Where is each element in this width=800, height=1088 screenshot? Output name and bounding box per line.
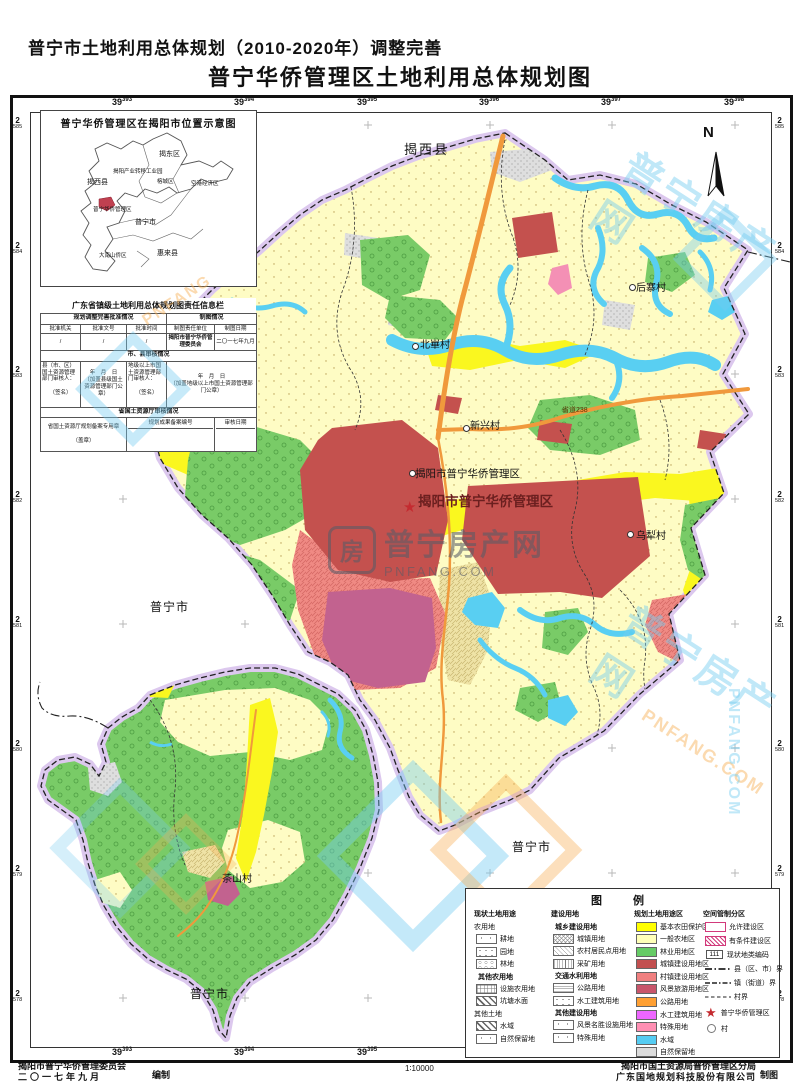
district-star-symbol: ★ xyxy=(705,1009,717,1017)
map-label-provincial-road: 省道238 xyxy=(562,405,588,415)
grid-label-right: 2582 xyxy=(775,492,784,504)
table-col-date: 制图日期 xyxy=(215,324,257,334)
grid-label-left: 2580 xyxy=(13,741,22,753)
grid-label-top: 39394 xyxy=(234,97,254,107)
location-inset-map: 普宁华侨管理区在揭阳市位置示意图 揭东区 揭阳产业转移工业园 揭西县 榕城区 空… xyxy=(40,110,257,287)
legend-group-other-land: 其他土地 xyxy=(474,1009,535,1019)
garden-symbol xyxy=(476,947,497,957)
map-label-puning-city-southwest: 普宁市 xyxy=(190,985,229,1002)
grid-label-right: 2584 xyxy=(775,243,784,255)
map-label-district-small: 揭阳市普宁华侨管理区 xyxy=(415,466,520,481)
zone-swatch-highway xyxy=(636,997,657,1007)
grid-label-left: 2581 xyxy=(13,617,22,629)
grid-label-top: 39397 xyxy=(601,97,621,107)
inset-outline xyxy=(41,125,254,284)
grid-label-top: 39395 xyxy=(357,97,377,107)
table-col-organ: 批准机关 xyxy=(41,324,81,334)
map-label-chashan-village: 茶山村 xyxy=(222,870,252,885)
map-label-puning-city-south: 普宁市 xyxy=(512,838,551,855)
zone-swatch-basic-farmland xyxy=(636,922,657,932)
legend-group-transport-water: 交通水利用地 xyxy=(555,971,633,981)
landuse-code-symbol: 111 xyxy=(706,950,723,959)
inset-region-label: 普宁市 xyxy=(135,217,156,227)
village-point xyxy=(629,284,636,291)
table-sec-province: 省国土资源厅审核情况 xyxy=(41,407,257,418)
district-star-marker: ★ xyxy=(403,498,416,516)
zone-swatch-natural-reserve xyxy=(636,1047,657,1057)
grid-label-bottom: 39393 xyxy=(112,1047,132,1057)
forest-symbol xyxy=(476,959,497,969)
table-val-time: / xyxy=(127,334,167,351)
map-label-jiexi-county: 揭西县 xyxy=(404,139,449,158)
responsibility-table: 广东省镇级土地利用总体规划图责任信息栏 规划调整完善批准情况 制图情况 批准机关… xyxy=(40,298,256,452)
footer-cartography-block: 揭阳市国土资源局普侨管理区分局 广东国地规划科技股份有限公司 xyxy=(560,1061,756,1083)
grid-label-left: 2583 xyxy=(13,367,22,379)
hydraulic-symbol xyxy=(553,996,574,1006)
village-boundary-symbol xyxy=(705,994,731,1000)
zone-swatch-general-agri xyxy=(636,934,657,944)
table-sec-city: 市、县审核情况 xyxy=(41,351,257,362)
inset-region-label: 榕城区 xyxy=(157,177,174,185)
grid-label-left: 2582 xyxy=(13,492,22,504)
table-col-unit: 制图责任单位 xyxy=(167,324,215,334)
inset-region-label: 惠来县 xyxy=(157,248,178,258)
zone-swatch-forestry xyxy=(636,947,657,957)
table-record-no: 规划成果备案编号 xyxy=(127,418,215,452)
table-col-time: 批准时间 xyxy=(127,324,167,334)
map-scale: 1∶10000 xyxy=(405,1064,434,1073)
responsibility-table-title: 广东省镇级土地利用总体规划图责任信息栏 xyxy=(40,298,256,313)
table-county-reviewer: 县（市、区）国土资源管理部门审核人： （签名） xyxy=(41,361,81,407)
plan-map-sheet: { "title": { "line1": "普宁市土地利用总体规划（2010-… xyxy=(0,0,800,1088)
village-point xyxy=(409,470,416,477)
footer-cartography-role: 制图 xyxy=(760,1068,778,1081)
legend-col1-header: 现状土地用途 xyxy=(474,909,535,919)
table-sec-approve: 规划调整完善批准情况 xyxy=(41,314,167,325)
inset-region-label: 揭东区 xyxy=(159,149,180,159)
table-col-doc: 批准文号 xyxy=(81,324,127,334)
table-review-date: 审核日期 xyxy=(215,418,257,452)
footer-compile-date: 二〇一七年九月 xyxy=(18,1072,126,1083)
table-province-seal: 省国土资源厅规划备案专用章 （盖章） xyxy=(41,418,127,452)
special-land-symbol xyxy=(553,1033,574,1043)
grid-label-bottom: 39394 xyxy=(234,1047,254,1057)
farmland-symbol xyxy=(476,934,497,944)
grid-label-left: 2579 xyxy=(13,866,22,878)
footer-cartography-org2: 广东国地规划科技股份有限公司 xyxy=(560,1072,756,1083)
legend-col4-header: 空间管制分区 xyxy=(703,909,783,919)
conditional-zone-symbol xyxy=(705,936,726,946)
legend-col3-header: 规划土地用途区 xyxy=(634,909,709,919)
legend-panel: 图 例 现状土地用途 农用地 耕地 园地 林地 其他农用地 设施农用地 坑塘水面… xyxy=(465,888,780,1058)
table-county-seal: 年 月 日 （加盖县级国土资源管理部门公章） xyxy=(81,361,127,407)
grid-label-right: 2581 xyxy=(775,617,784,629)
grid-label-top: 39398 xyxy=(724,97,744,107)
zone-swatch-scenic-tourism xyxy=(636,984,657,994)
grid-label-left: 2585 xyxy=(13,118,22,130)
legend-group-other-construction: 其他建设用地 xyxy=(555,1008,633,1018)
legend-col-construction: 建设用地 城乡建设用地 城镇用地 农村居民点用地 采矿用地 交通水利用地 公路用… xyxy=(551,909,633,1046)
grid-label-right: 2585 xyxy=(775,118,784,130)
legend-col-planned: 规划土地用途区 基本农田保护区 一般农地区 林业用地区 城镇建设用地区 村镇建设… xyxy=(634,909,709,1060)
inset-region-label: 普宁华侨管理区 xyxy=(93,205,132,213)
scenic-facility-symbol xyxy=(553,1020,574,1030)
inset-region-label: 揭西县 xyxy=(87,177,108,187)
table-city-reviewer: 地级以上市国土资源管理部门审核人： （签名） xyxy=(127,361,167,407)
table-val-doc: / xyxy=(81,334,127,351)
map-label-district-main: 揭阳市普宁华侨管理区 xyxy=(418,490,553,510)
grid-label-right: 2579 xyxy=(775,866,784,878)
grid-label-left: 2578 xyxy=(13,991,22,1003)
zone-swatch-town-construction xyxy=(636,959,657,969)
map-label-puning-city-west: 普宁市 xyxy=(150,598,189,615)
town-land-symbol xyxy=(553,934,574,944)
footer-compiler-org: 揭阳市普宁华侨管理委员会 xyxy=(18,1061,126,1072)
map-label-wuli-village: 乌犁村 xyxy=(636,527,666,542)
map-label-xinxing-village: 新兴村 xyxy=(470,417,500,432)
grid-label-right: 2583 xyxy=(775,367,784,379)
county-boundary-symbol xyxy=(705,966,731,972)
village-point xyxy=(412,343,419,350)
legend-col-current: 现状土地用途 农用地 耕地 园地 林地 其他农用地 设施农用地 坑塘水面 其他土… xyxy=(474,909,535,1047)
zone-swatch-hydraulic xyxy=(636,1010,657,1020)
inset-region-label: 空港经济区 xyxy=(191,179,219,187)
footer-compiler-block: 揭阳市普宁华侨管理委员会 二〇一七年九月 xyxy=(18,1061,126,1083)
legend-title: 图 例 xyxy=(466,892,779,908)
map-label-houzhai-village: 后寨村 xyxy=(636,279,666,294)
pond-symbol xyxy=(476,996,497,1006)
inset-region-label: 大南山侨区 xyxy=(99,251,127,259)
legend-col-control: 空间管制分区 允许建设区 有条件建设区 111现状地类编码 县（区、市）界 镇（… xyxy=(703,909,783,1036)
legend-group-other-agri: 其他农用地 xyxy=(478,972,535,982)
village-point-symbol xyxy=(707,1024,716,1033)
grid-label-top: 39393 xyxy=(112,97,132,107)
table-val-unit: 揭阳市普宁华侨管理委员会 xyxy=(167,334,215,351)
grid-label-top: 39396 xyxy=(479,97,499,107)
village-point xyxy=(627,531,634,538)
table-sec-mapping: 制图情况 xyxy=(167,314,257,325)
table-val-organ: / xyxy=(41,334,81,351)
water-symbol xyxy=(476,1021,497,1031)
facility-agri-symbol xyxy=(476,984,497,994)
road-land-symbol xyxy=(553,983,574,993)
table-val-date: 二〇一七年九月 xyxy=(215,334,257,351)
mining-symbol xyxy=(553,959,574,969)
legend-group-urban-rural: 城乡建设用地 xyxy=(555,922,633,932)
natural-reserve-symbol xyxy=(476,1034,497,1044)
footer-cartography-org1: 揭阳市国土资源局普侨管理区分局 xyxy=(560,1061,756,1072)
legend-group-agricultural: 农用地 xyxy=(474,922,535,932)
grid-label-right: 2580 xyxy=(775,741,784,753)
grid-label-bottom: 39395 xyxy=(357,1047,377,1057)
grid-label-left: 2584 xyxy=(13,243,22,255)
footer-compiler-role: 编制 xyxy=(152,1068,170,1081)
table-city-seal: 年 月 日 （加盖地级以上市国土资源管理部门公章） xyxy=(167,361,257,407)
zone-swatch-special xyxy=(636,1022,657,1032)
inset-region-label: 揭阳产业转移工业园 xyxy=(113,167,163,175)
zone-swatch-village-construction xyxy=(636,972,657,982)
north-letter: N xyxy=(703,124,714,141)
rural-settlement-symbol xyxy=(553,946,574,956)
zone-swatch-water xyxy=(636,1035,657,1045)
town-boundary-symbol xyxy=(705,980,731,986)
legend-col2-header: 建设用地 xyxy=(551,909,633,919)
allowed-zone-symbol xyxy=(705,922,726,932)
map-label-beishan-village: 北崋村 xyxy=(420,336,450,351)
village-point xyxy=(463,425,470,432)
